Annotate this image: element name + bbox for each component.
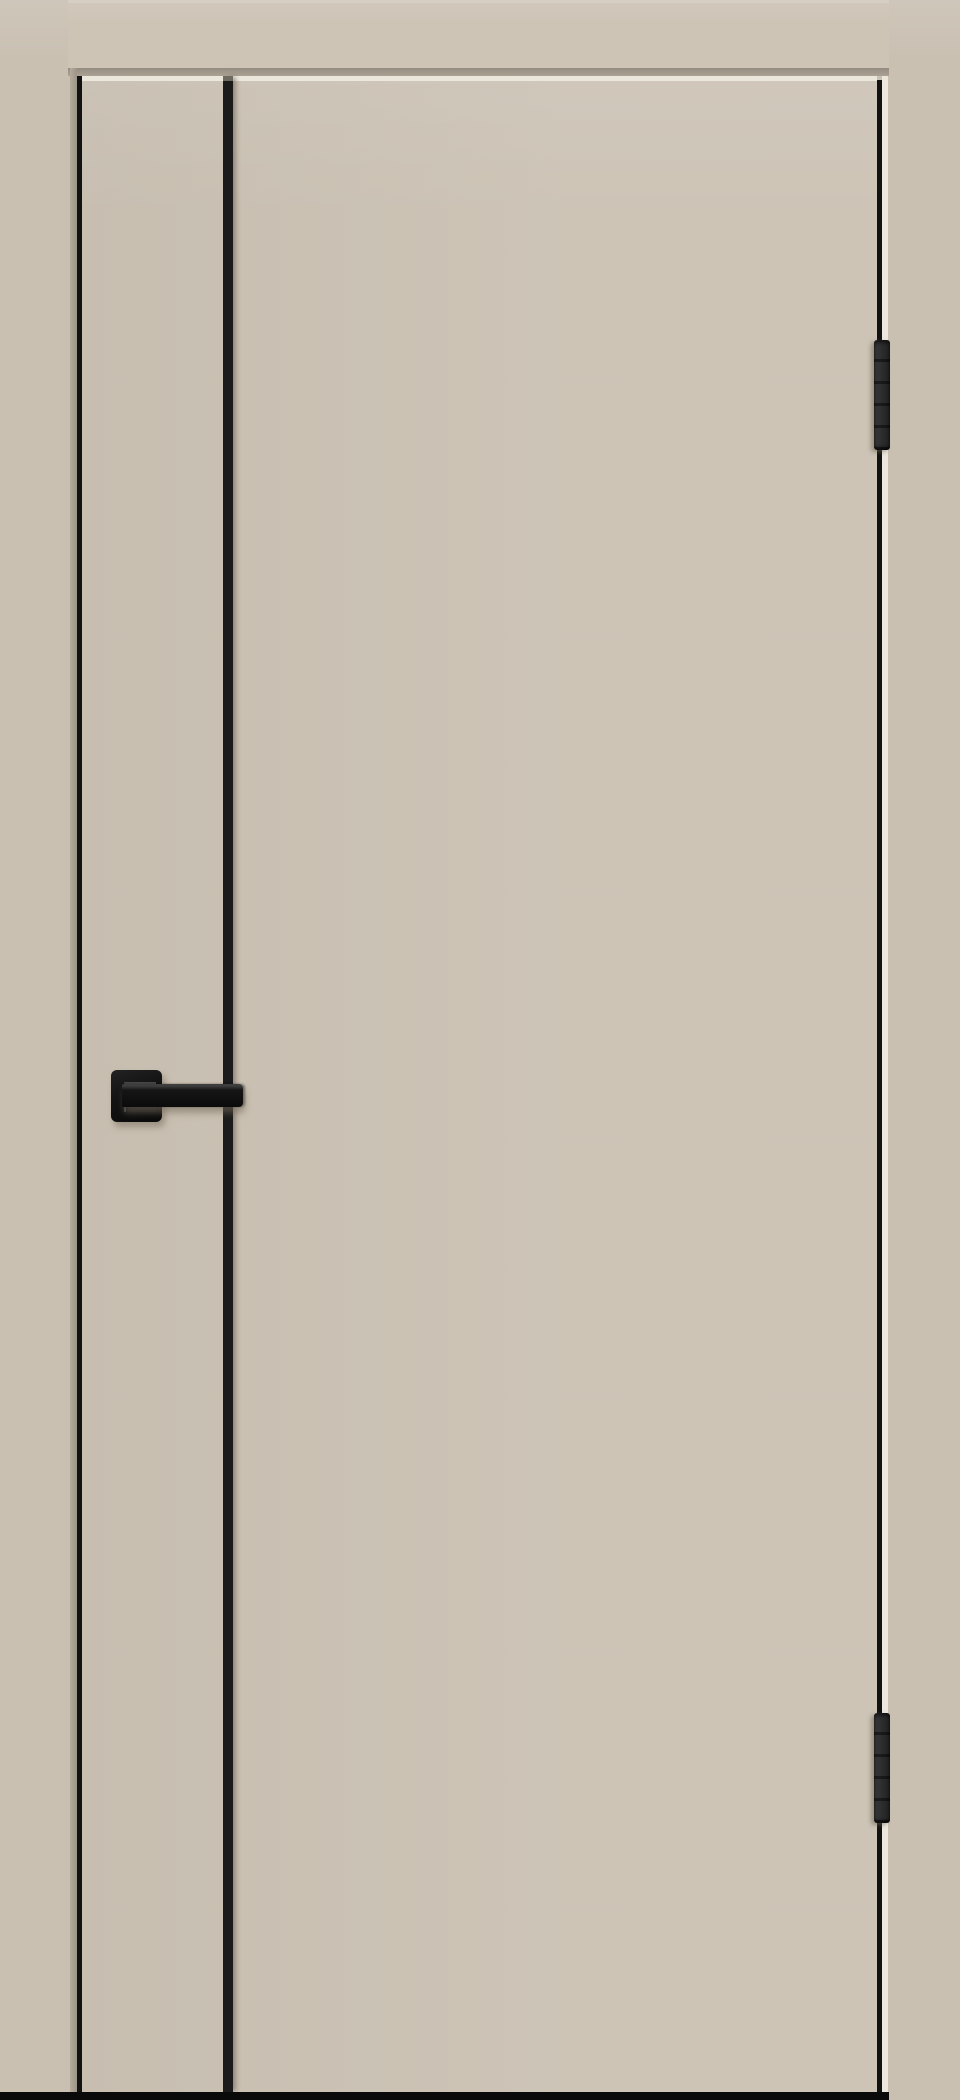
door-product-photo [0,0,960,2100]
door-jamb-left-shadow [70,68,77,2096]
door-leaf-left-edge-line [77,76,82,2100]
casing-shadow-line [68,68,889,76]
handle-lever [122,1084,243,1107]
hinge-top [874,340,890,450]
hinge-bottom [874,1713,890,1823]
wall-strip-left [0,0,68,2100]
bottom-threshold-gap [0,2092,889,2100]
wall-strip-right [888,0,960,2100]
door-casing-top [68,0,889,68]
